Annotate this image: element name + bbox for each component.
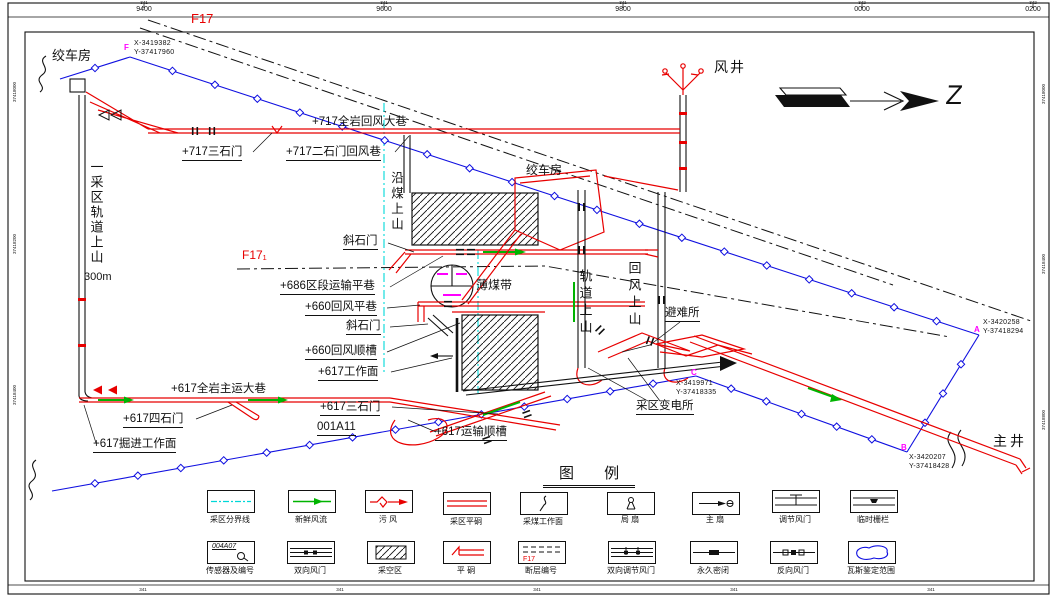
grid-label-left: 37418000 [12, 82, 17, 102]
thin-coal-belt-symbol [431, 265, 473, 307]
legend-symbol-district-boundary [207, 490, 255, 513]
inclined-crosscut [428, 315, 453, 336]
label-660-return-gateway: +660回风顺槽 [305, 345, 377, 360]
point-b-y: Y-37418428 [909, 463, 950, 471]
label-thin-coal-belt: 薄煤带 [476, 279, 512, 292]
legend-symbol-reverse-door [770, 541, 818, 564]
legend-fault-code: F17 [523, 556, 535, 563]
winch-house-mid-label: 绞车房 [526, 164, 562, 177]
legend-symbol-permanent-seal [690, 541, 738, 564]
grid-label-right: 37418000 [1041, 84, 1046, 104]
label-xieshimen-upper: 斜石门 [343, 235, 378, 250]
refuge-structure [598, 333, 752, 358]
label-rail-rise-length: 300m [84, 271, 112, 283]
label-660-return-level: +660回风平巷 [305, 301, 377, 316]
legend-symbol-fault-number: F17 [518, 541, 566, 564]
label-coal-rise: 沿煤上山 [389, 171, 403, 233]
point-f-y: Y-37417960 [134, 49, 175, 57]
drawing-sheet: F17 F17₁ 风井 绞车房 绞车房 F X-3419382 Y-374179… [0, 0, 1057, 597]
point-c-x: X-3419971 [676, 380, 713, 388]
legend-symbol-two-way-regulating-door [608, 541, 656, 564]
gob-area-lower [430, 312, 545, 392]
label-617-main-haul: +617全岩主运大巷 [171, 383, 266, 396]
winch-house-top-label: 绞车房 [52, 49, 91, 64]
point-b-id: B [901, 444, 907, 453]
label-track-rise: 轨道上山 [577, 269, 592, 337]
grid-tick: 9400 [136, 6, 152, 13]
point-b-x: X-3420207 [909, 454, 946, 462]
point-a-id: A [974, 326, 980, 335]
roadway-686 [389, 249, 648, 274]
legend-title: 图 例 [543, 462, 635, 488]
stopping-symbols [193, 127, 664, 444]
legend-symbol-foul-air [365, 490, 413, 513]
sensor-code: 004A07 [212, 543, 236, 550]
label-substation: 采区变电所 [636, 400, 694, 415]
label-717-ershimen: +717二石门回风巷 [286, 146, 381, 161]
main-shaft-incline [690, 336, 1030, 474]
gas-range-outline [52, 57, 979, 491]
main-shaft-label: 主井 [993, 434, 1027, 450]
label-686-transport: +686区段运输平巷 [280, 280, 375, 295]
legend-symbol-local-fan [607, 492, 655, 515]
north-arrow-icon [775, 88, 939, 111]
legend-symbol-gas-range [848, 541, 896, 564]
grid-tick-prefix: 341 [140, 0, 148, 5]
legend-symbol-sensor: 004A07 [207, 541, 255, 564]
label-617-transport-gateway: +617运输顺槽 [435, 426, 507, 441]
label-return-rise: 回风上山 [626, 261, 641, 329]
legend-symbol-district-adit [443, 492, 491, 515]
legend-symbol-gob [367, 541, 415, 564]
label-617-heading-face: +617掘进工作面 [93, 438, 176, 453]
legend-symbol-coal-face [520, 492, 568, 515]
label-717-sanshimen: +717三石门 [182, 146, 242, 161]
point-f-x: X-3419382 [134, 40, 171, 48]
fault-label-f17-1: F17₁ [242, 249, 267, 262]
point-a-y: Y-37418294 [983, 328, 1024, 336]
point-c-id: C [691, 369, 697, 378]
label-workface-id: 001A11 [317, 421, 356, 436]
legend-symbol-fresh-air [288, 490, 336, 513]
label-717-main-return: +717全岩回风大巷 [312, 116, 407, 129]
label-617-workface: +617工作面 [318, 366, 378, 381]
point-f-id: F [124, 44, 129, 53]
fault-label-f17: F17 [191, 12, 213, 27]
north-letter: Z [944, 80, 964, 111]
point-c-y: Y-37418335 [676, 389, 717, 397]
wind-shaft-label: 风井 [714, 60, 746, 76]
legend-symbol-two-way-door [287, 541, 335, 564]
legend-label: 采区分界线 [210, 514, 250, 525]
grid-tick-bottom: 341 [139, 587, 147, 592]
label-617-sanshimen: +617三石门 [320, 401, 380, 416]
label-refuge: 避难所 [665, 307, 700, 322]
legend-symbol-temp-fence [850, 490, 898, 513]
wind-shaft-symbol [662, 64, 703, 192]
legend-symbol-adit [443, 541, 491, 564]
legend-symbol-main-fan [692, 492, 740, 515]
point-a-x: X-3420258 [983, 319, 1020, 327]
legend-symbol-regulating-door [772, 490, 820, 513]
label-district-rail-rise: 一采区轨道上山 [88, 160, 103, 265]
label-617-sishimen: +617四石门 [123, 413, 183, 428]
label-xieshimen-lower: 斜石门 [346, 320, 381, 335]
